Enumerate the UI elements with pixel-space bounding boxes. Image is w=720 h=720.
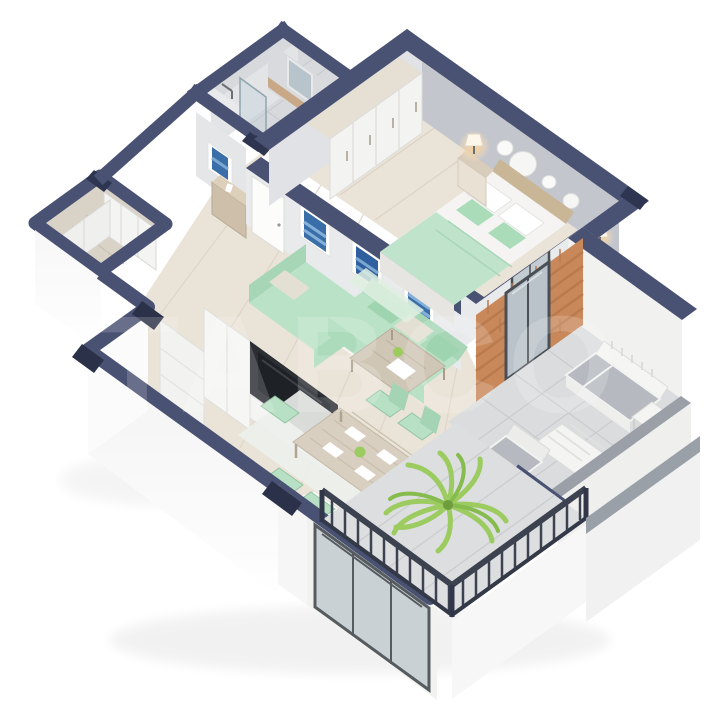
isometric-apartment-scene: TABCO (0, 0, 720, 720)
dining-plant (355, 447, 366, 458)
hall-west-wall (103, 93, 196, 176)
watermark: TABCO (95, 288, 625, 442)
floor-plan-render: TABCO (0, 0, 720, 720)
lamp-shade (465, 134, 483, 146)
